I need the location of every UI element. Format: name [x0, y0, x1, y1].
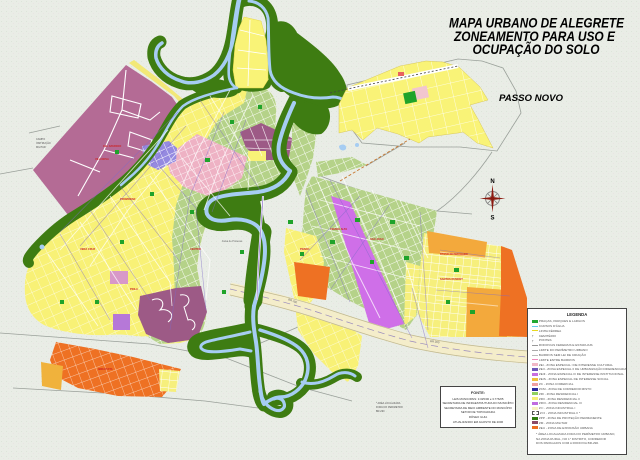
svg-text:* AREA LOCALIZADA: * AREA LOCALIZADA [376, 402, 401, 405]
svg-text:SAO JOAO: SAO JOAO [370, 237, 384, 241]
svg-text:N: N [490, 179, 494, 185]
svg-text:FORA DO PERIMETRO: FORA DO PERIMETRO [376, 406, 403, 409]
svg-text:CEL APARICIO: CEL APARICIO [103, 144, 121, 148]
svg-text:OCUPAÇÃO DO SOLO: OCUPAÇÃO DO SOLO [473, 40, 600, 57]
svg-text:BR-290: BR-290 [376, 410, 385, 413]
svg-text:CIDADE ALTA: CIDADE ALTA [330, 227, 347, 231]
svg-text:Faixa de Protecao: Faixa de Protecao [222, 240, 243, 243]
svg-text:PIOLA: PIOLA [130, 287, 138, 291]
svg-text:MILITAR: MILITAR [36, 146, 46, 149]
svg-text:VERA CRUZ: VERA CRUZ [80, 247, 95, 251]
svg-text:INSTRUÇÃO: INSTRUÇÃO [36, 142, 51, 145]
svg-text:PASSO DO MACHADO: PASSO DO MACHADO [440, 252, 468, 256]
svg-text:VILA NOVA: VILA NOVA [95, 157, 109, 161]
svg-text:PRADO: PRADO [300, 247, 309, 251]
svg-text:CENTRO: CENTRO [190, 247, 201, 251]
svg-text:IBIRAPUITA: IBIRAPUITA [98, 367, 113, 371]
svg-text:S: S [490, 216, 494, 222]
svg-text:CAMPO: CAMPO [36, 138, 45, 141]
svg-text:PROMORAR: PROMORAR [120, 197, 136, 201]
svg-text:SANTOS DUMONT: SANTOS DUMONT [440, 277, 463, 281]
svg-text:PASSO NOVO: PASSO NOVO [499, 93, 563, 103]
